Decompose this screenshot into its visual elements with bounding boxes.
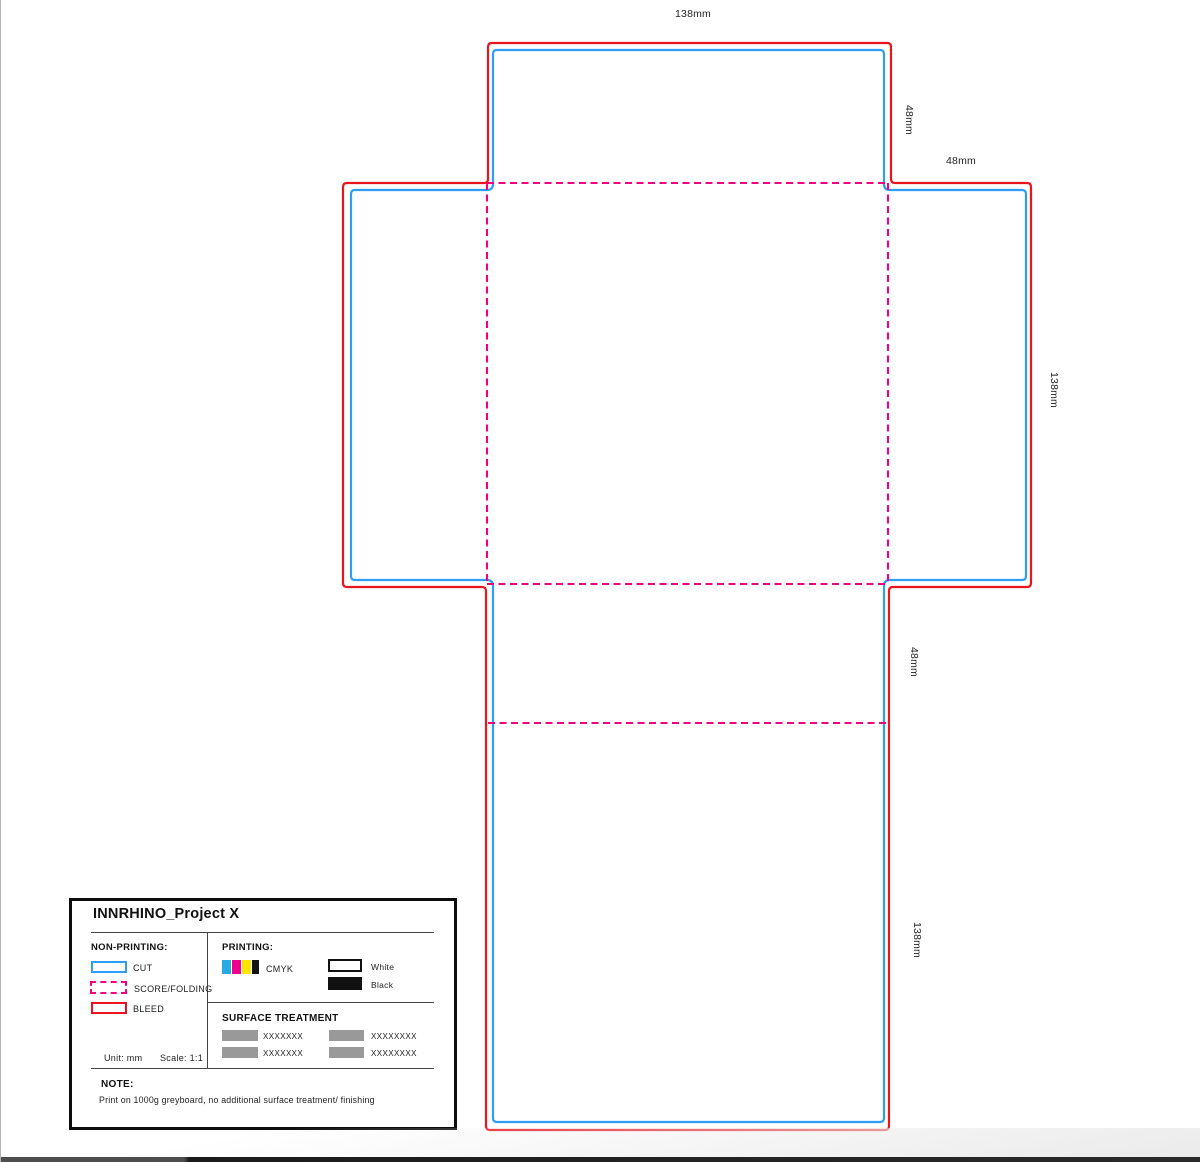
black-swatch	[328, 977, 362, 990]
yellow-swatch	[242, 960, 251, 974]
white-swatch	[328, 959, 362, 972]
dimension-label-right-panel-height: 138mm	[1048, 372, 1060, 408]
surface-treatment-swatch	[329, 1047, 364, 1058]
score-folding-swatch	[90, 981, 127, 994]
legend-title-divider	[91, 932, 434, 933]
scale-label: Scale: 1:1	[160, 1053, 203, 1063]
legend-bottom-divider	[91, 1068, 434, 1069]
note-heading: NOTE:	[101, 1079, 134, 1090]
dimension-label-top-flap-height: 48mm	[903, 105, 915, 135]
dimension-label-right-flap-width: 48mm	[946, 155, 976, 167]
surface-treatment-label: XXXXXXX	[263, 1049, 303, 1058]
bleed-swatch	[91, 1002, 127, 1014]
surface-treatment-label: XXXXXXXX	[371, 1049, 417, 1058]
non-printing-heading: NON-PRINTING:	[91, 942, 168, 953]
score-folding-label: SCORE/FOLDING	[134, 984, 212, 994]
black-label: Black	[371, 980, 393, 990]
surface-treatment-label: XXXXXXXX	[371, 1032, 417, 1041]
note-text: Print on 1000g greyboard, no additional …	[99, 1095, 375, 1105]
legend-column-divider	[207, 932, 208, 1068]
cut-swatch	[91, 961, 127, 973]
white-label: White	[371, 962, 394, 972]
unit-label: Unit: mm	[104, 1053, 142, 1063]
cmyk-swatch	[222, 960, 262, 974]
dimension-label-bottom-panel-height: 138mm	[911, 922, 923, 958]
key-black-swatch	[252, 960, 259, 974]
cut-label: CUT	[133, 963, 152, 973]
window-bottom-edge	[1, 1157, 1200, 1162]
magenta-swatch	[232, 960, 241, 974]
cyan-swatch	[222, 960, 231, 974]
legend-box: INNRHINO_Project X NON-PRINTING: CUT SCO…	[69, 898, 457, 1130]
surface-treatment-heading: SURFACE TREATMENT	[222, 1013, 339, 1024]
cmyk-label: CMYK	[266, 964, 293, 974]
page: { "dieline": { "labels": { "top_width": …	[0, 0, 1200, 1162]
legend-title: INNRHINO_Project X	[93, 906, 239, 922]
surface-treatment-swatch	[222, 1030, 258, 1041]
bleed-label: BLEED	[133, 1004, 164, 1014]
dimension-label-top-width: 138mm	[675, 8, 711, 20]
surface-treatment-swatch	[329, 1030, 364, 1041]
surface-treatment-swatch	[222, 1047, 258, 1058]
surface-treatment-label: XXXXXXX	[263, 1032, 303, 1041]
legend-printing-divider	[207, 1002, 434, 1003]
printing-heading: PRINTING:	[222, 942, 273, 953]
dimension-label-bottom-flap-height: 48mm	[908, 647, 920, 677]
